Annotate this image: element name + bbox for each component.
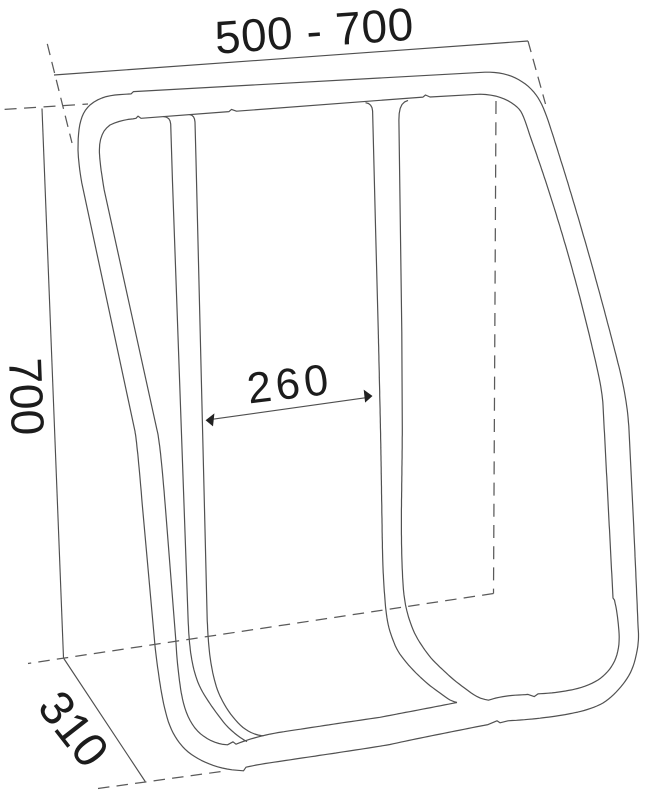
svg-text:310: 310: [27, 682, 118, 778]
svg-text:500 - 700: 500 - 700: [213, 0, 416, 64]
svg-text:260: 260: [245, 356, 336, 414]
svg-text:700: 700: [0, 357, 54, 437]
